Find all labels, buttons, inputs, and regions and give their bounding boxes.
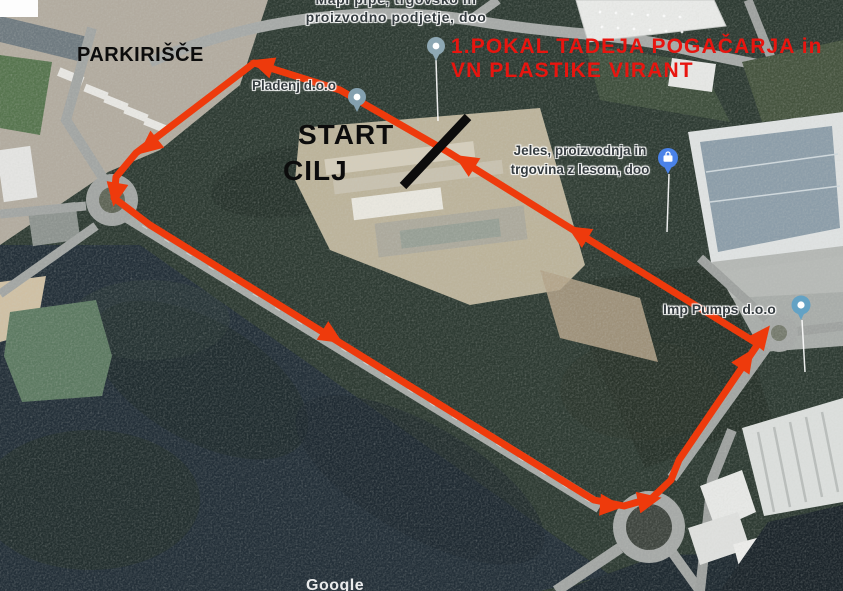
satellite-background <box>0 0 843 591</box>
map-label-imp-pumps: Imp Pumps d.o.o <box>663 300 776 319</box>
white-patch <box>0 0 38 17</box>
satellite-map-image <box>0 0 843 591</box>
map-label-pladenj: Pladenj d.o.o <box>252 76 336 95</box>
map-label-jeles: Jeles, proizvodnja in trgovina z lesom, … <box>511 141 650 179</box>
map-label-mapi-pipe: Mapi pipe, trgovsko in proizvodno podjet… <box>306 0 487 26</box>
parking-label: PARKIRIŠČE <box>77 44 204 67</box>
finish-label: CILJ <box>283 155 348 187</box>
map-canvas: Mapi pipe, trgovsko in proizvodno podjet… <box>0 0 843 591</box>
start-label: START <box>298 119 394 151</box>
event-title-line1: 1.POKAL TADEJA POGAČARJA in <box>451 35 823 59</box>
event-title: 1.POKAL TADEJA POGAČARJA in VN PLASTIKE … <box>451 35 823 83</box>
event-title-line2: VN PLASTIKE VIRANT <box>451 59 823 83</box>
google-watermark: Google <box>306 577 364 591</box>
